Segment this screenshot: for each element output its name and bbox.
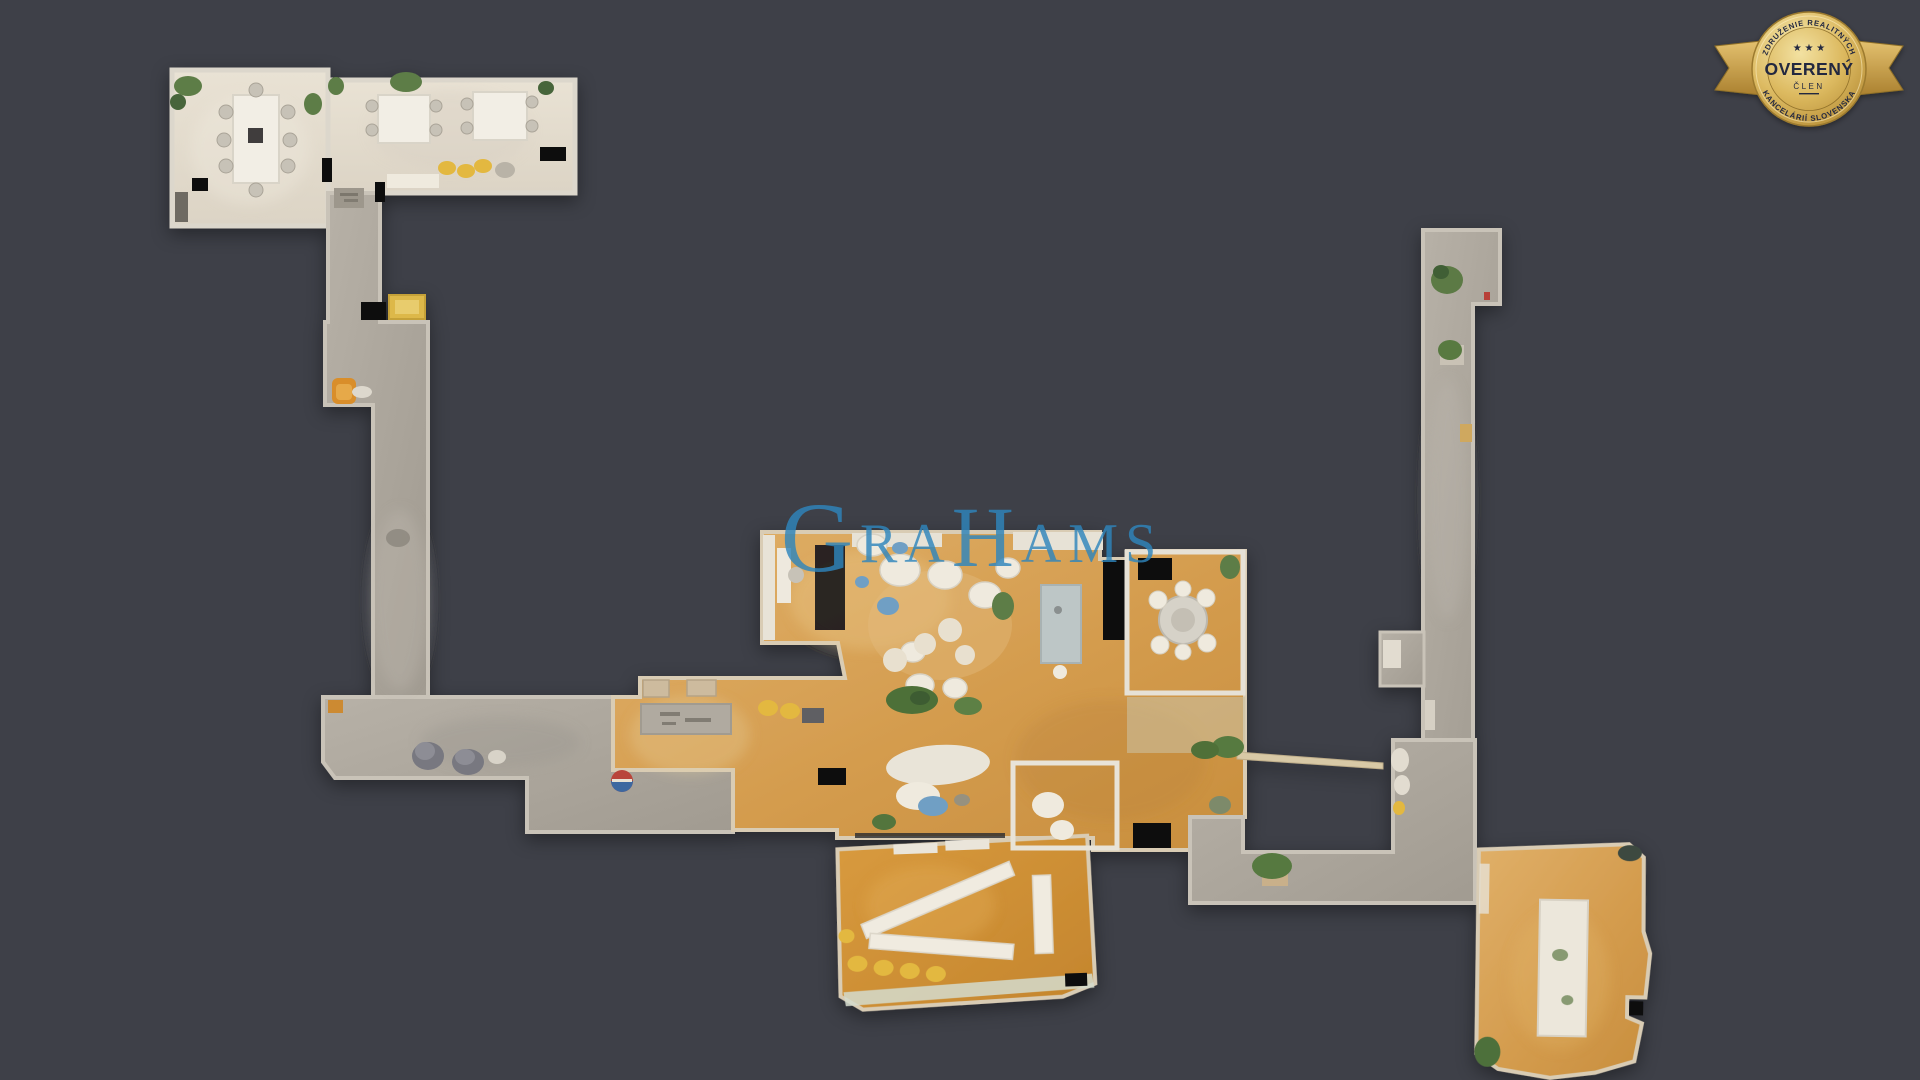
plant [1191,741,1219,759]
bench [893,843,937,855]
white-stool [488,750,506,764]
plant [538,81,554,95]
plant [1209,796,1231,814]
red-marker [1484,292,1490,300]
floor-void [361,302,386,320]
shelf [1425,700,1435,730]
chair [788,567,804,583]
floor-void [1138,558,1172,580]
badge-underline [1799,93,1819,94]
long-table [1538,900,1588,1037]
plant [1252,853,1292,879]
table-object [248,128,263,143]
badge-title: OVERENÝ [1764,58,1853,79]
printer [802,708,824,723]
yellow-item [1393,801,1405,815]
chair [1032,792,1064,818]
chair [495,162,515,178]
door-opening [1065,973,1087,987]
table-object [1054,606,1062,614]
orange-stool [328,700,343,713]
desk [473,92,527,140]
plant [174,76,202,96]
plant [1220,555,1240,579]
cabinet [1383,640,1401,668]
verified-member-badge: ZDRUŽENIE REALITNÝCH KANCELÁRIÍ SLOVENSK… [1703,3,1915,137]
shelf-wall [763,535,775,640]
badge-subtitle: ČLEN [1793,82,1824,91]
door-opening [322,158,332,182]
plant [304,93,322,115]
floor-void [1133,823,1171,848]
matterport-floorplan-view[interactable]: GRAHAMS ZDRUŽENIE REALITNÝCH KANCELÁRIÍ … [0,0,1920,1080]
floor-void [815,545,845,630]
plant [390,72,422,92]
badge-stars: ★ ★ ★ [1793,43,1825,54]
shelf [1013,532,1103,550]
floor-void [1629,1001,1643,1015]
floor-scuff [386,529,410,547]
chair [1053,665,1067,679]
wall-line [855,833,1005,838]
gym-ball [611,770,633,792]
blue-chair [918,796,948,816]
bench [387,174,439,188]
plant [328,77,344,95]
floor-void [818,768,846,785]
floorplan-svg [0,0,1920,1080]
bench [945,839,989,851]
long-table [1041,585,1081,663]
plant [1438,340,1462,360]
stool [1460,424,1472,442]
wall-shadow [175,192,188,222]
desk [378,95,430,143]
chair [1050,820,1074,840]
floor-void [540,147,566,161]
plant [872,814,896,830]
side-table [352,386,372,398]
wall-band [1479,864,1490,914]
bench [687,680,716,696]
plant [170,94,186,110]
floor-void [192,178,208,191]
bench [643,680,669,697]
wall-stub [375,182,385,202]
doormat [334,188,364,208]
floor-void [1103,560,1125,640]
